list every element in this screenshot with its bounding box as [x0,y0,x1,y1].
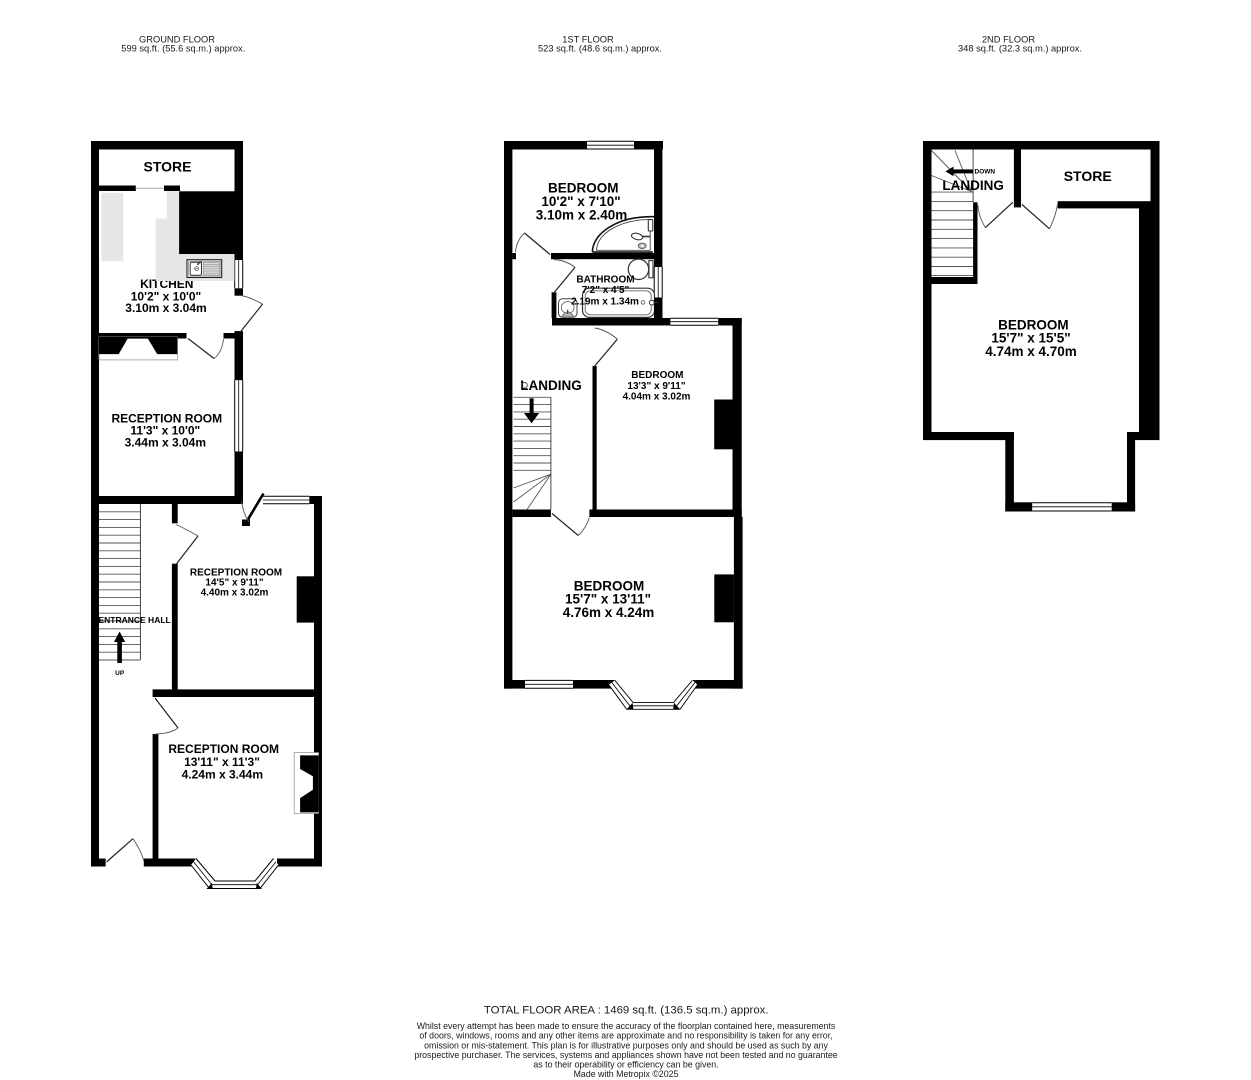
svg-text:Whilst every attempt has been: Whilst every attempt has been made to en… [417,1021,836,1031]
svg-text:4.40m x 3.02m: 4.40m x 3.02m [201,588,269,599]
svg-text:BATHROOM: BATHROOM [576,274,634,285]
svg-text:RECEPTION ROOM: RECEPTION ROOM [168,742,279,756]
svg-text:4.76m x 4.24m: 4.76m x 4.24m [563,605,655,620]
svg-text:523 sq.ft. (48.6 sq.m.) approx: 523 sq.ft. (48.6 sq.m.) approx. [538,44,662,54]
svg-text:7'2" x 4'5": 7'2" x 4'5" [582,285,630,296]
svg-text:3.44m x 3.04m: 3.44m x 3.04m [125,435,206,449]
svg-text:BEDROOM: BEDROOM [631,370,683,381]
svg-text:prospective purchaser. The ser: prospective purchaser. The services, sys… [414,1050,837,1060]
svg-text:599 sq.ft. (55.6 sq.m.) approx: 599 sq.ft. (55.6 sq.m.) approx. [121,44,245,54]
svg-text:of doors, windows, rooms and a: of doors, windows, rooms and any other i… [419,1031,832,1041]
svg-text:348 sq.ft. (32.3 sq.m.) approx: 348 sq.ft. (32.3 sq.m.) approx. [958,44,1082,54]
svg-text:4.74m x 4.70m: 4.74m x 4.70m [985,344,1077,359]
svg-text:STORE: STORE [1064,168,1112,184]
svg-text:DOWN: DOWN [975,169,996,176]
svg-text:LANDING: LANDING [520,378,582,393]
svg-text:as to their operability or eff: as to their operability or efficiency ca… [533,1060,718,1070]
svg-text:UP: UP [115,670,125,677]
svg-text:4.04m x 3.02m: 4.04m x 3.02m [623,391,691,402]
svg-text:3.10m x 2.40m: 3.10m x 2.40m [536,207,628,222]
svg-text:4.24m x 3.44m: 4.24m x 3.44m [182,767,263,781]
svg-text:3.10m x 3.04m: 3.10m x 3.04m [125,301,206,315]
svg-text:ENTRANCE HALL: ENTRANCE HALL [98,615,170,625]
svg-text:2.19m x 1.34m: 2.19m x 1.34m [571,296,639,307]
svg-text:TOTAL FLOOR AREA : 1469 sq.ft.: TOTAL FLOOR AREA : 1469 sq.ft. (136.5 sq… [484,1004,769,1016]
svg-text:Made with Metropix ©2025: Made with Metropix ©2025 [574,1069,679,1079]
svg-text:13'3" x 9'11": 13'3" x 9'11" [627,381,685,392]
svg-text:omission or mis-statement. Thi: omission or mis-statement. This plan is … [424,1040,828,1050]
svg-text:STORE: STORE [144,159,192,175]
svg-text:LANDING: LANDING [942,178,1004,193]
